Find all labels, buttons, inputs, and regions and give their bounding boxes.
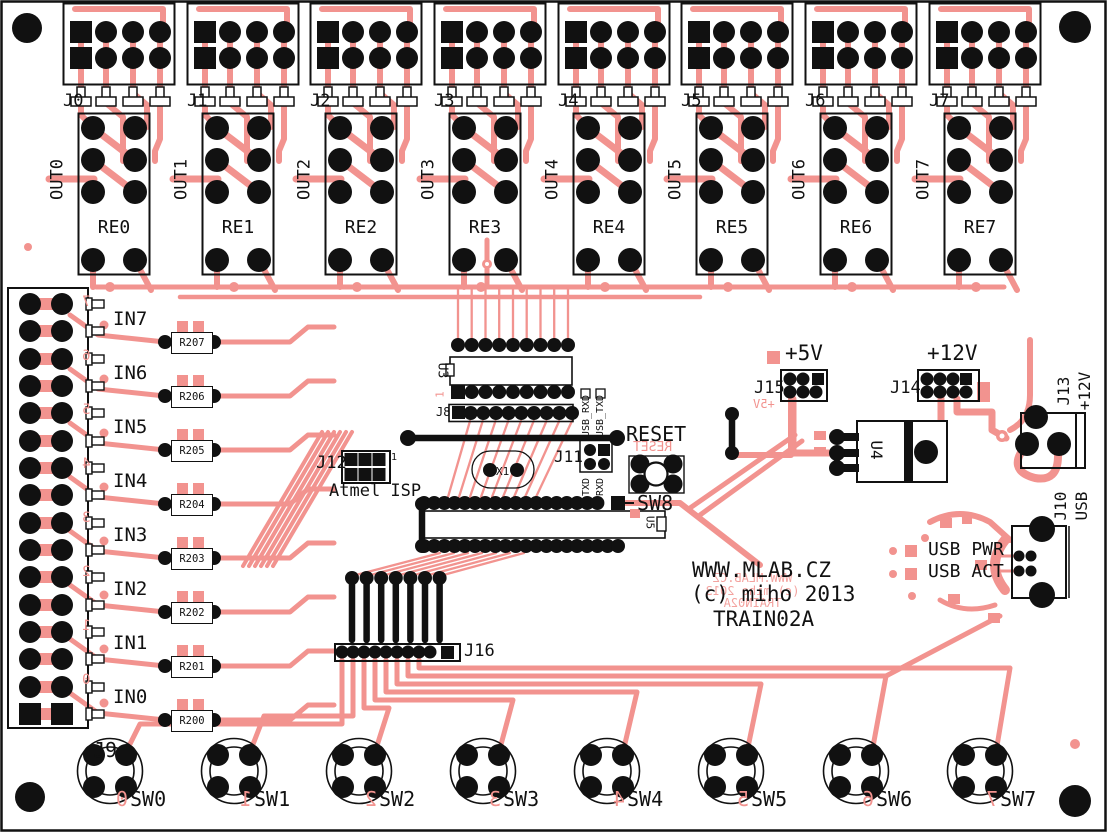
out-label-3: OUT3 bbox=[421, 145, 438, 215]
connector-label-j10: J10 bbox=[1053, 484, 1069, 528]
pcb-graphics bbox=[0, 0, 1107, 832]
copper-digit-in4: 4 bbox=[82, 457, 90, 471]
j13-voltage-label: +12V bbox=[1077, 366, 1093, 416]
signal-label-usb-txd: USB_TXD bbox=[596, 389, 606, 443]
copper-digit-sw4: 4 bbox=[613, 789, 625, 809]
regulator-label-u4: U4 bbox=[868, 435, 884, 465]
switch-label-sw1: SW1 bbox=[254, 789, 290, 809]
copper-digit-in5: 5 bbox=[82, 403, 90, 417]
connector-label-j0: J0 bbox=[63, 93, 83, 110]
resistor-r204: R204 bbox=[171, 494, 213, 516]
header-label-j15: J15 bbox=[754, 380, 785, 397]
copper-digit-sw6: 6 bbox=[862, 789, 874, 809]
connector-label-j2: J2 bbox=[310, 93, 330, 110]
ic-label-u3: U3 bbox=[436, 356, 449, 386]
header-label-j14: J14 bbox=[890, 380, 921, 397]
copyright-label: (c) miho 2013 bbox=[691, 584, 855, 605]
copper-digit-in0: 0 bbox=[82, 673, 90, 687]
header-j16-footprint bbox=[335, 644, 460, 661]
pcb-board: J0 J1 J2 J3 J4 J5 J6 J7 OUT0 OUT1 OUT2 O… bbox=[0, 0, 1107, 832]
power-label-5v: +5V bbox=[785, 343, 823, 364]
signal-label-rxd: RXD bbox=[596, 471, 606, 503]
input-label-in7: IN7 bbox=[113, 310, 147, 329]
resistor-r203: R203 bbox=[171, 548, 213, 570]
crystal-label-x1: X1 bbox=[496, 466, 509, 477]
usb-pwr-label: USB PWR bbox=[928, 541, 1004, 559]
reset-copper-mirror: RESET bbox=[633, 441, 672, 454]
out-label-1: OUT1 bbox=[174, 145, 191, 215]
out-label-5: OUT5 bbox=[668, 145, 685, 215]
relay-label-re2: RE2 bbox=[325, 219, 397, 237]
u3-pin1-marker: 1 bbox=[435, 389, 446, 401]
j12-pin1-marker: 1 bbox=[391, 453, 397, 463]
header-label-j16: J16 bbox=[464, 643, 495, 660]
out-label-0: OUT0 bbox=[50, 145, 67, 215]
copper-digit-in6: 6 bbox=[82, 349, 90, 363]
resistor-r201: R201 bbox=[171, 656, 213, 678]
connector-label-j4: J4 bbox=[558, 93, 578, 110]
relay-label-re6: RE6 bbox=[820, 219, 892, 237]
copper-digit-in3: 3 bbox=[82, 511, 90, 525]
connector-label-j9: J9 bbox=[93, 740, 117, 760]
switch-label-sw3: SW3 bbox=[503, 789, 539, 809]
copper-digit-in1: 1 bbox=[82, 619, 90, 633]
copper-digit-sw3: 3 bbox=[489, 789, 501, 809]
switch-label-sw7: SW7 bbox=[1000, 789, 1036, 809]
product-label: TRAIN02A bbox=[713, 609, 814, 630]
input-label-in6: IN6 bbox=[113, 364, 147, 383]
relay-label-re0: RE0 bbox=[78, 219, 150, 237]
input-label-in2: IN2 bbox=[113, 580, 147, 599]
connector-label-j3: J3 bbox=[434, 93, 454, 110]
copper-digit-sw7: 7 bbox=[986, 789, 998, 809]
input-label-in3: IN3 bbox=[113, 526, 147, 545]
resistor-r207: R207 bbox=[171, 332, 213, 354]
signal-label-txd: TXD bbox=[582, 471, 592, 503]
out-label-6: OUT6 bbox=[792, 145, 809, 215]
out-label-7: OUT7 bbox=[916, 145, 933, 215]
copper-digit-sw2: 2 bbox=[365, 789, 377, 809]
copper-digit-sw5: 5 bbox=[737, 789, 749, 809]
relay-label-re3: RE3 bbox=[449, 219, 521, 237]
resistor-r205: R205 bbox=[171, 440, 213, 462]
out-label-4: OUT4 bbox=[545, 145, 562, 215]
connector-label-j13: J13 bbox=[1056, 366, 1072, 416]
j10-usb-label: USB bbox=[1074, 484, 1090, 528]
switch-label-sw5: SW5 bbox=[751, 789, 787, 809]
signal-label-usb-rxd: USB_RXD bbox=[582, 389, 592, 443]
switch-label-sw6: SW6 bbox=[876, 789, 912, 809]
sw8-label: SW8 bbox=[637, 493, 673, 513]
isp-name-label: Atmel ISP bbox=[329, 483, 421, 500]
connector-label-j1: J1 bbox=[187, 93, 207, 110]
copper-digit-sw1: 1 bbox=[240, 789, 252, 809]
connector-label-j7: J7 bbox=[929, 93, 949, 110]
j15-copper-mirror: +5V bbox=[753, 398, 775, 410]
out-label-2: OUT2 bbox=[297, 145, 314, 215]
resistor-r206: R206 bbox=[171, 386, 213, 408]
resistor-r202: R202 bbox=[171, 602, 213, 624]
input-label-in0: IN0 bbox=[113, 688, 147, 707]
input-label-in4: IN4 bbox=[113, 472, 147, 491]
switch-label-sw0: SW0 bbox=[130, 789, 166, 809]
resistor-r200: R200 bbox=[171, 710, 213, 732]
header-label-j11: J11 bbox=[554, 449, 583, 465]
input-label-in1: IN1 bbox=[113, 634, 147, 653]
input-label-in5: IN5 bbox=[113, 418, 147, 437]
header-label-j12: J12 bbox=[316, 455, 347, 472]
relay-label-re4: RE4 bbox=[573, 219, 645, 237]
relay-label-re1: RE1 bbox=[202, 219, 274, 237]
copper-digit-in2: 2 bbox=[82, 565, 90, 579]
power-label-12v: +12V bbox=[927, 343, 978, 364]
connector-label-j5: J5 bbox=[681, 93, 701, 110]
relay-label-re7: RE7 bbox=[944, 219, 1016, 237]
switch-label-sw2: SW2 bbox=[379, 789, 415, 809]
switch-label-sw4: SW4 bbox=[627, 789, 663, 809]
site-label: WWW.MLAB.CZ bbox=[692, 560, 831, 581]
header-label-j8: J8 bbox=[436, 406, 450, 418]
connector-label-j6: J6 bbox=[805, 93, 825, 110]
relay-label-re5: RE5 bbox=[696, 219, 768, 237]
usb-act-label: USB ACT bbox=[928, 563, 1004, 581]
copper-digit-sw0: 0 bbox=[116, 789, 128, 809]
copper-digit-in7: 7 bbox=[82, 295, 90, 309]
